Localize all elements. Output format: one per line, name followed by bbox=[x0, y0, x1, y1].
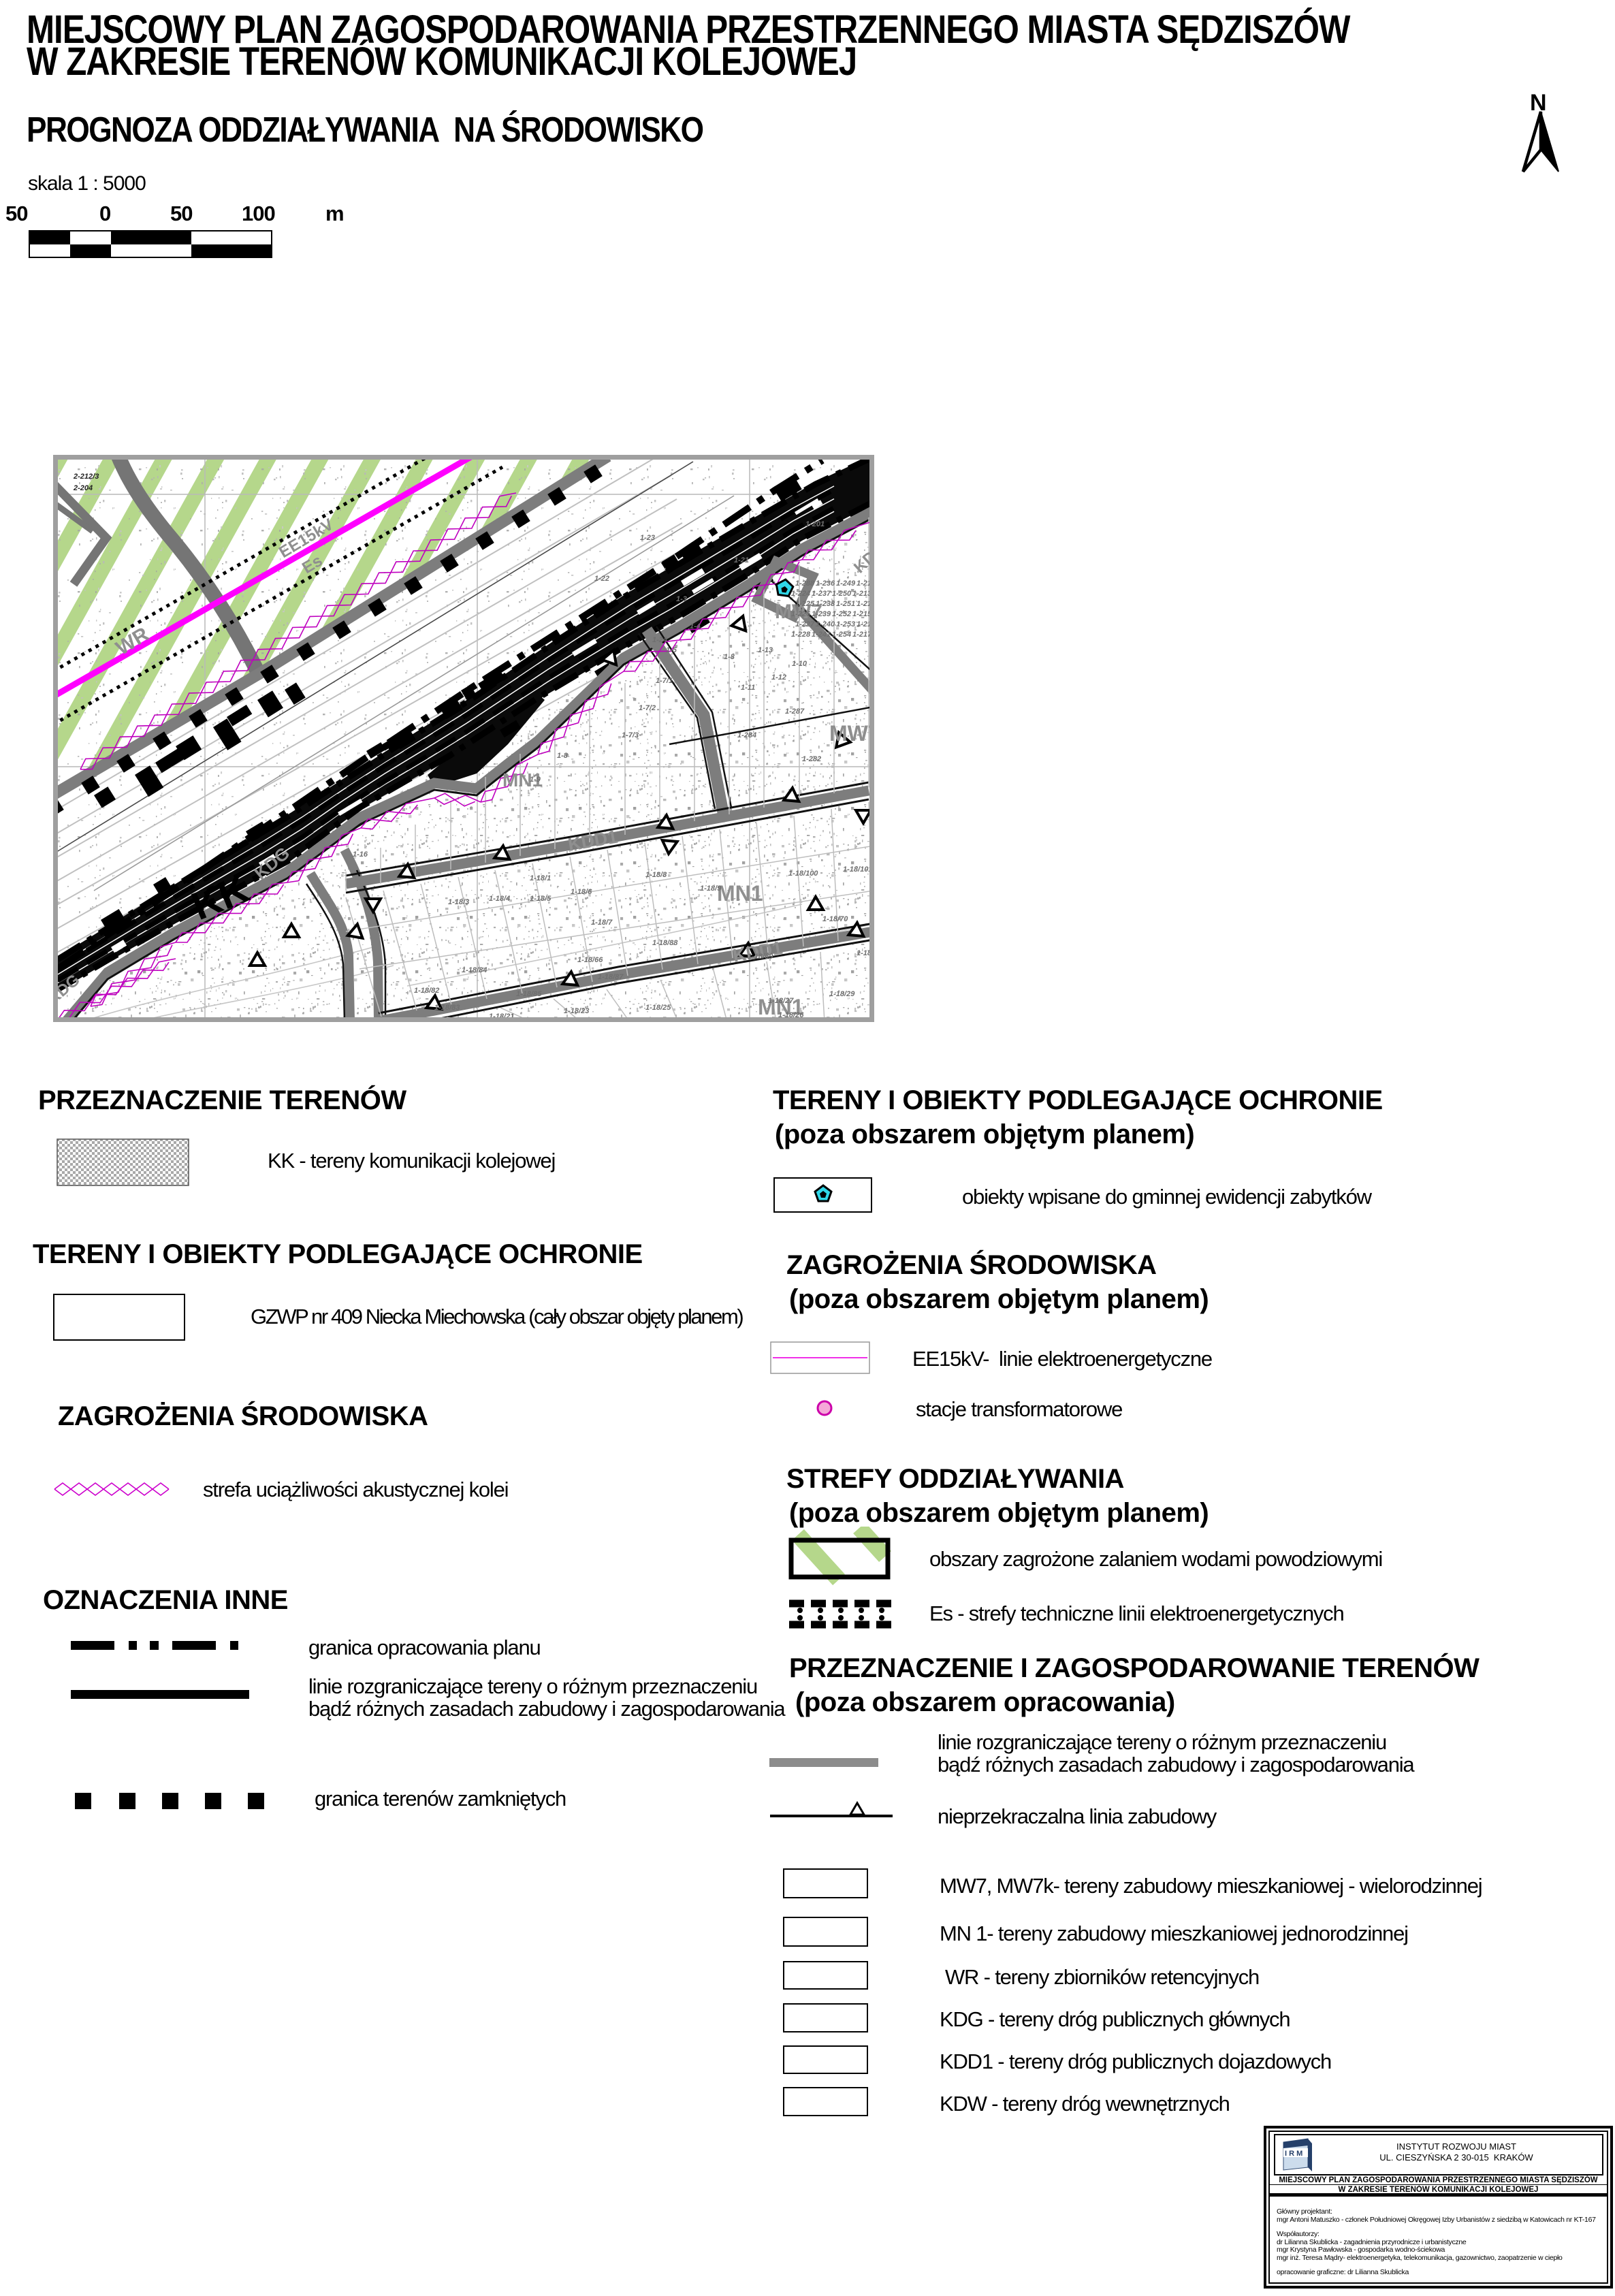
svg-text:1-249: 1-249 bbox=[836, 579, 856, 588]
svg-text:1-18/69: 1-18/69 bbox=[748, 953, 773, 961]
svg-text:1-18/9: 1-18/9 bbox=[700, 884, 722, 893]
svg-text:1-7/1: 1-7/1 bbox=[656, 677, 673, 685]
svg-text:1-7/2: 1-7/2 bbox=[639, 704, 656, 712]
svg-text:1-18/87: 1-18/87 bbox=[598, 973, 624, 981]
svg-text:1-16: 1-16 bbox=[353, 850, 368, 859]
svg-text:1-11: 1-11 bbox=[741, 684, 755, 692]
svg-text:1-288: 1-288 bbox=[795, 579, 815, 588]
svg-text:1-252: 1-252 bbox=[832, 610, 851, 618]
svg-text:1-240: 1-240 bbox=[816, 620, 835, 628]
svg-text:1-215: 1-215 bbox=[852, 610, 872, 618]
svg-text:1-18/66: 1-18/66 bbox=[577, 956, 603, 964]
svg-text:1-7/3: 1-7/3 bbox=[622, 731, 639, 739]
svg-text:1-18/23: 1-18/23 bbox=[564, 1007, 589, 1015]
svg-text:1-228: 1-228 bbox=[791, 631, 811, 639]
svg-text:1-251: 1-251 bbox=[836, 600, 855, 608]
svg-text:MN1: MN1 bbox=[717, 881, 763, 906]
svg-text:1-239: 1-239 bbox=[812, 610, 831, 618]
svg-text:1-18/4: 1-18/4 bbox=[489, 895, 510, 903]
svg-text:I R M: I R M bbox=[1285, 2150, 1302, 2158]
svg-text:1-4: 1-4 bbox=[690, 622, 701, 631]
svg-text:1-8: 1-8 bbox=[724, 653, 735, 661]
svg-text:1-236: 1-236 bbox=[816, 579, 835, 588]
svg-text:1-226: 1-226 bbox=[791, 610, 811, 618]
svg-text:1-217: 1-217 bbox=[852, 631, 872, 639]
svg-text:1-18/84: 1-18/84 bbox=[462, 966, 487, 974]
svg-text:1-18/100: 1-18/100 bbox=[788, 870, 818, 878]
svg-text:MW7: MW7 bbox=[829, 721, 874, 746]
svg-text:1-5: 1-5 bbox=[666, 646, 677, 654]
svg-text:1-201: 1-201 bbox=[805, 520, 825, 528]
svg-text:1-224: 1-224 bbox=[791, 590, 810, 598]
svg-text:1-253: 1-253 bbox=[836, 620, 855, 628]
svg-text:2-204: 2-204 bbox=[73, 484, 93, 492]
svg-text:1-18/1: 1-18/1 bbox=[530, 874, 551, 882]
svg-text:1-23: 1-23 bbox=[640, 534, 655, 542]
svg-text:1-225: 1-225 bbox=[795, 600, 815, 608]
svg-text:1-8: 1-8 bbox=[557, 752, 569, 760]
svg-text:1-18/25: 1-18/25 bbox=[645, 1004, 671, 1012]
svg-text:1-18/27: 1-18/27 bbox=[768, 997, 794, 1005]
svg-text:1-18/7: 1-18/7 bbox=[591, 919, 613, 927]
svg-text:1-18/70: 1-18/70 bbox=[822, 915, 848, 923]
svg-text:1-287: 1-287 bbox=[785, 707, 805, 716]
svg-text:N: N bbox=[1530, 90, 1547, 116]
svg-text:1-237: 1-237 bbox=[812, 590, 831, 598]
svg-text:2-212/3: 2-212/3 bbox=[73, 473, 99, 481]
svg-text:1-241: 1-241 bbox=[812, 631, 831, 639]
svg-text:1-13: 1-13 bbox=[758, 646, 773, 654]
svg-text:1-18/83: 1-18/83 bbox=[434, 1004, 460, 1012]
svg-text:1-213: 1-213 bbox=[852, 590, 872, 598]
svg-text:1-24: 1-24 bbox=[652, 636, 667, 644]
svg-text:1-18/5: 1-18/5 bbox=[530, 895, 551, 903]
svg-text:1-18/85: 1-18/85 bbox=[516, 990, 542, 998]
svg-text:1-254: 1-254 bbox=[832, 631, 851, 639]
svg-text:1-3: 1-3 bbox=[676, 595, 687, 603]
svg-text:1-22: 1-22 bbox=[594, 575, 609, 583]
svg-text:1-9: 1-9 bbox=[530, 776, 541, 784]
svg-text:1-18/82: 1-18/82 bbox=[414, 987, 439, 995]
svg-text:1-284: 1-284 bbox=[737, 731, 756, 739]
svg-text:1-18/6: 1-18/6 bbox=[571, 888, 592, 896]
svg-text:1-10: 1-10 bbox=[792, 660, 807, 668]
svg-text:1-227: 1-227 bbox=[795, 620, 815, 628]
svg-text:1-238: 1-238 bbox=[816, 600, 835, 608]
svg-text:1-18/8: 1-18/8 bbox=[645, 871, 667, 879]
svg-text:1-18/88: 1-18/88 bbox=[652, 939, 678, 947]
svg-text:1-250: 1-250 bbox=[832, 590, 852, 598]
svg-text:1-18/29: 1-18/29 bbox=[829, 990, 855, 998]
svg-text:1-18/101: 1-18/101 bbox=[843, 865, 872, 874]
svg-text:1-282: 1-282 bbox=[802, 755, 821, 763]
svg-text:1-12: 1-12 bbox=[771, 673, 786, 682]
svg-text:1-21: 1-21 bbox=[734, 556, 749, 564]
svg-text:1-18/3: 1-18/3 bbox=[448, 898, 469, 906]
